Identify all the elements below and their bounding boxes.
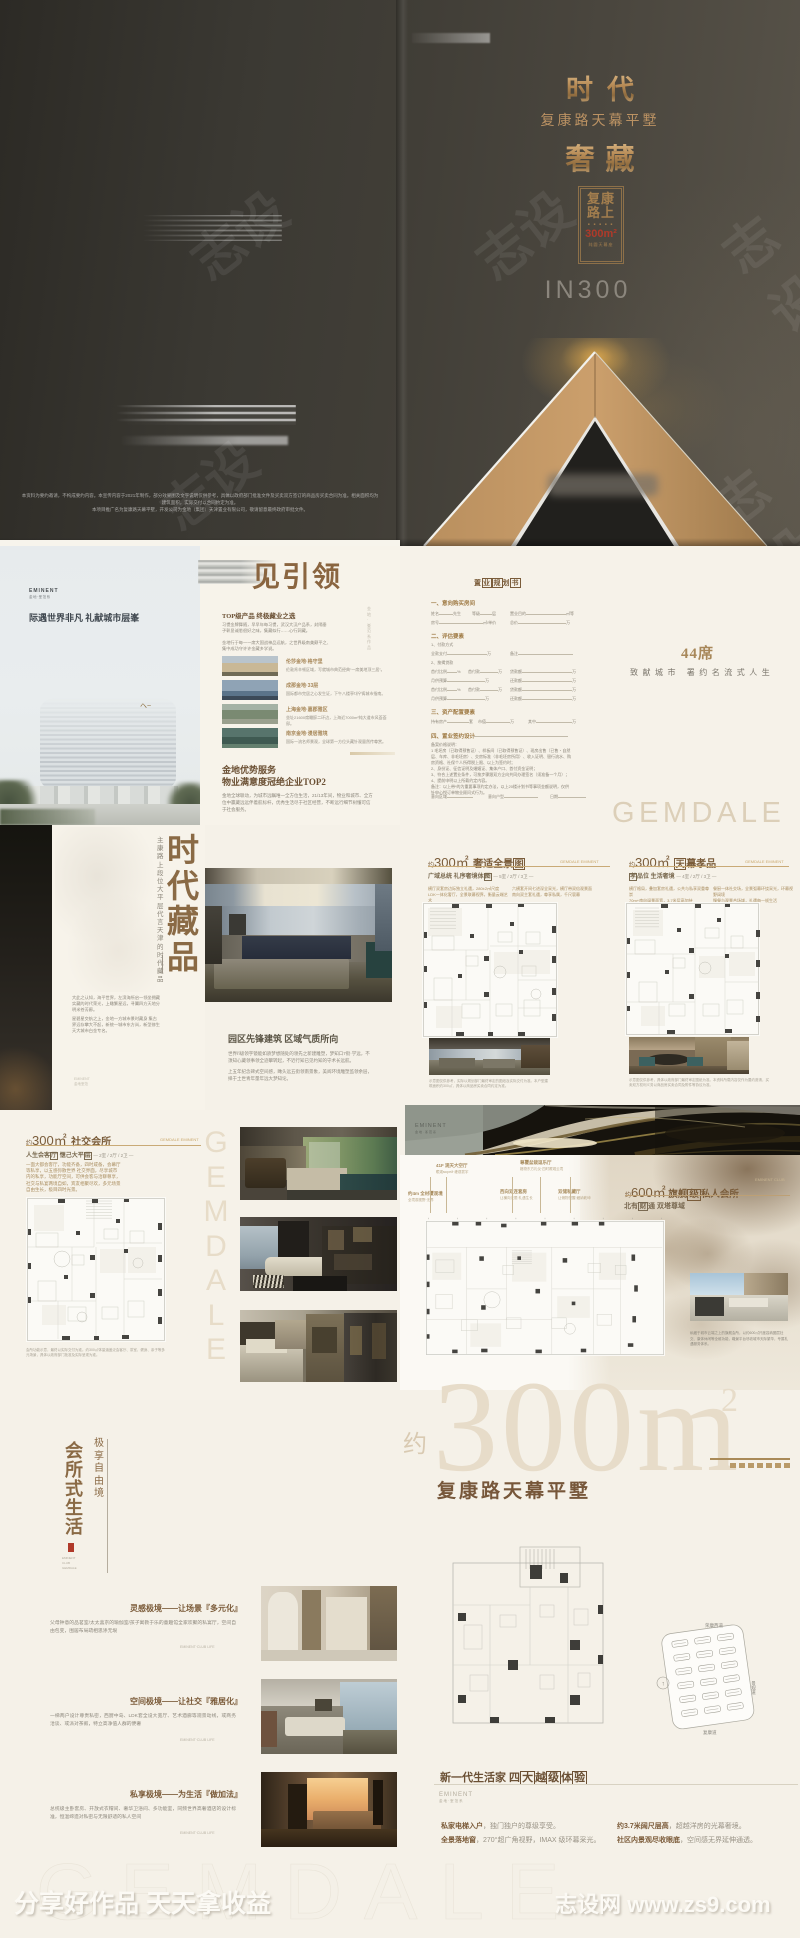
svg-text:景观道: 景观道 [751, 1681, 757, 1696]
svg-text:↑: ↑ [662, 1682, 665, 1688]
svg-text:荣康西道: 荣康西道 [705, 1622, 723, 1629]
svg-text:复康道: 复康道 [703, 1729, 717, 1736]
